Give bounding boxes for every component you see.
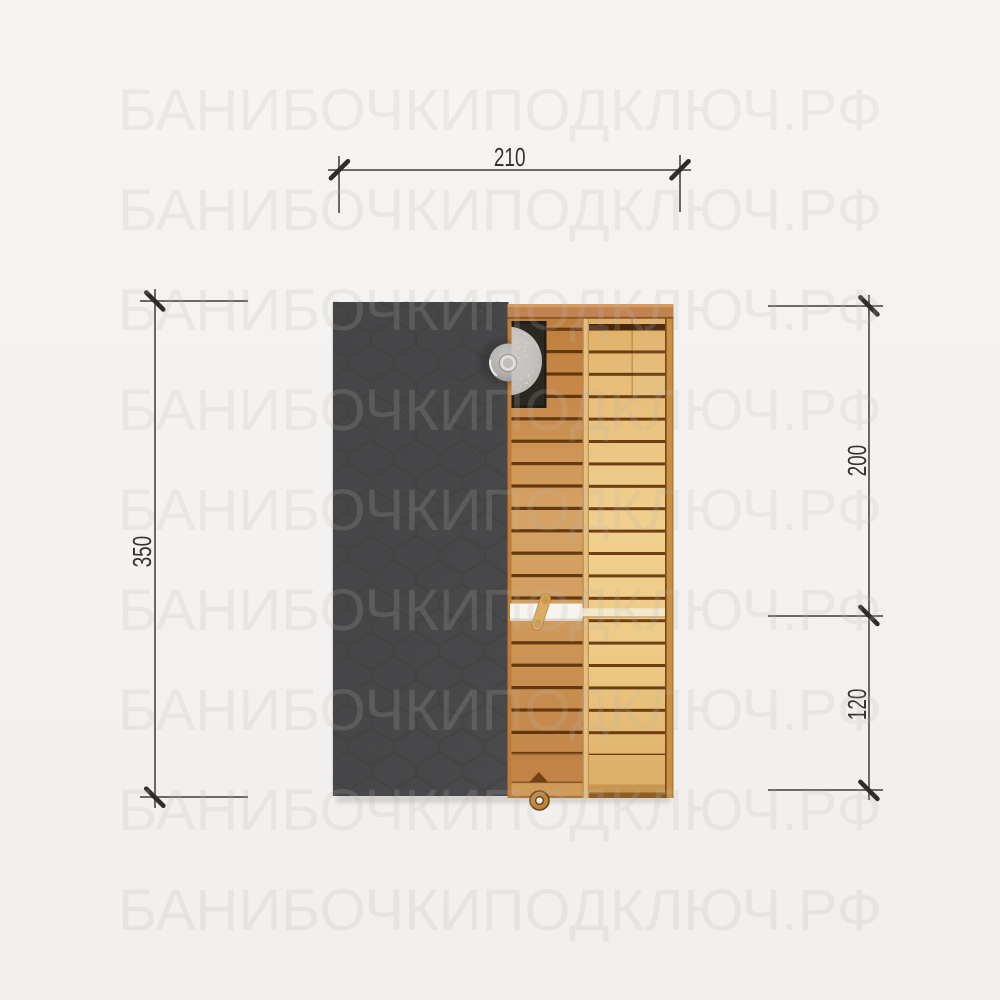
svg-text:БАНИБОЧКИПОДКЛЮЧ.РФ: БАНИБОЧКИПОДКЛЮЧ.РФ <box>118 578 882 643</box>
svg-text:БАНИБОЧКИПОДКЛЮЧ.РФ: БАНИБОЧКИПОДКЛЮЧ.РФ <box>118 278 882 343</box>
svg-text:БАНИБОЧКИПОДКЛЮЧ.РФ: БАНИБОЧКИПОДКЛЮЧ.РФ <box>118 778 882 843</box>
svg-text:БАНИБОЧКИПОДКЛЮЧ.РФ: БАНИБОЧКИПОДКЛЮЧ.РФ <box>118 678 882 743</box>
svg-text:БАНИБОЧКИПОДКЛЮЧ.РФ: БАНИБОЧКИПОДКЛЮЧ.РФ <box>118 478 882 543</box>
svg-text:БАНИБОЧКИПОДКЛЮЧ.РФ: БАНИБОЧКИПОДКЛЮЧ.РФ <box>118 378 882 443</box>
svg-text:БАНИБОЧКИПОДКЛЮЧ.РФ: БАНИБОЧКИПОДКЛЮЧ.РФ <box>118 878 882 943</box>
svg-text:210: 210 <box>494 142 526 172</box>
svg-text:БАНИБОЧКИПОДКЛЮЧ.РФ: БАНИБОЧКИПОДКЛЮЧ.РФ <box>118 178 882 243</box>
svg-text:200: 200 <box>842 445 872 477</box>
svg-text:БАНИБОЧКИПОДКЛЮЧ.РФ: БАНИБОЧКИПОДКЛЮЧ.РФ <box>118 78 882 143</box>
